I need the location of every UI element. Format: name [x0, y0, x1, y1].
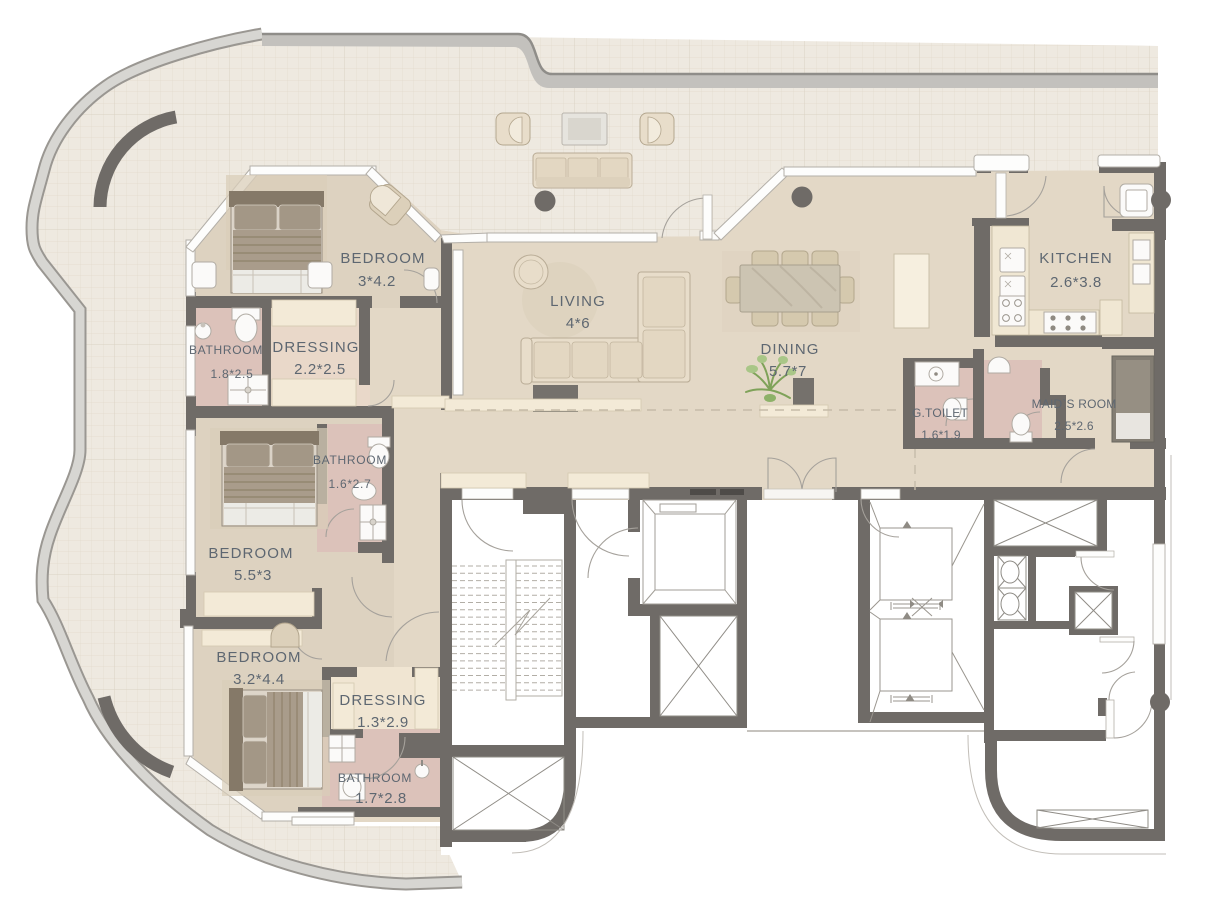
- svg-text:BEDROOM: BEDROOM: [208, 545, 293, 562]
- svg-text:KITCHEN: KITCHEN: [1039, 250, 1113, 267]
- svg-text:1.7*2.8: 1.7*2.8: [355, 790, 407, 807]
- svg-text:BATHROOM: BATHROOM: [313, 453, 387, 467]
- svg-text:G.TOILET: G.TOILET: [912, 406, 969, 420]
- svg-text:MAID`S ROOM: MAID`S ROOM: [1032, 397, 1117, 411]
- svg-text:BEDROOM: BEDROOM: [340, 250, 425, 267]
- svg-text:LIVING: LIVING: [550, 293, 606, 310]
- svg-text:BATHROOM: BATHROOM: [338, 771, 412, 785]
- svg-text:2.2*2.5: 2.2*2.5: [294, 361, 346, 378]
- svg-text:1.3*2.9: 1.3*2.9: [357, 714, 409, 731]
- svg-text:5.5*3: 5.5*3: [234, 567, 272, 584]
- svg-text:1.8*2.5: 1.8*2.5: [211, 367, 254, 381]
- svg-text:BATHROOM: BATHROOM: [189, 343, 263, 357]
- svg-text:4*6: 4*6: [566, 315, 590, 332]
- svg-text:BEDROOM: BEDROOM: [216, 649, 301, 666]
- svg-text:DRESSING: DRESSING: [339, 692, 426, 709]
- svg-text:DINING: DINING: [760, 341, 819, 358]
- svg-text:2.6*3.8: 2.6*3.8: [1050, 274, 1102, 291]
- svg-text:DRESSING: DRESSING: [272, 339, 359, 356]
- svg-text:5.7*7: 5.7*7: [769, 363, 807, 380]
- svg-text:3.2*4.4: 3.2*4.4: [233, 671, 285, 688]
- svg-text:2.5*2.6: 2.5*2.6: [1054, 419, 1094, 433]
- svg-text:1.6*1.9: 1.6*1.9: [921, 428, 961, 442]
- svg-text:1.6*2.7: 1.6*2.7: [329, 477, 372, 491]
- svg-text:3*4.2: 3*4.2: [358, 273, 396, 290]
